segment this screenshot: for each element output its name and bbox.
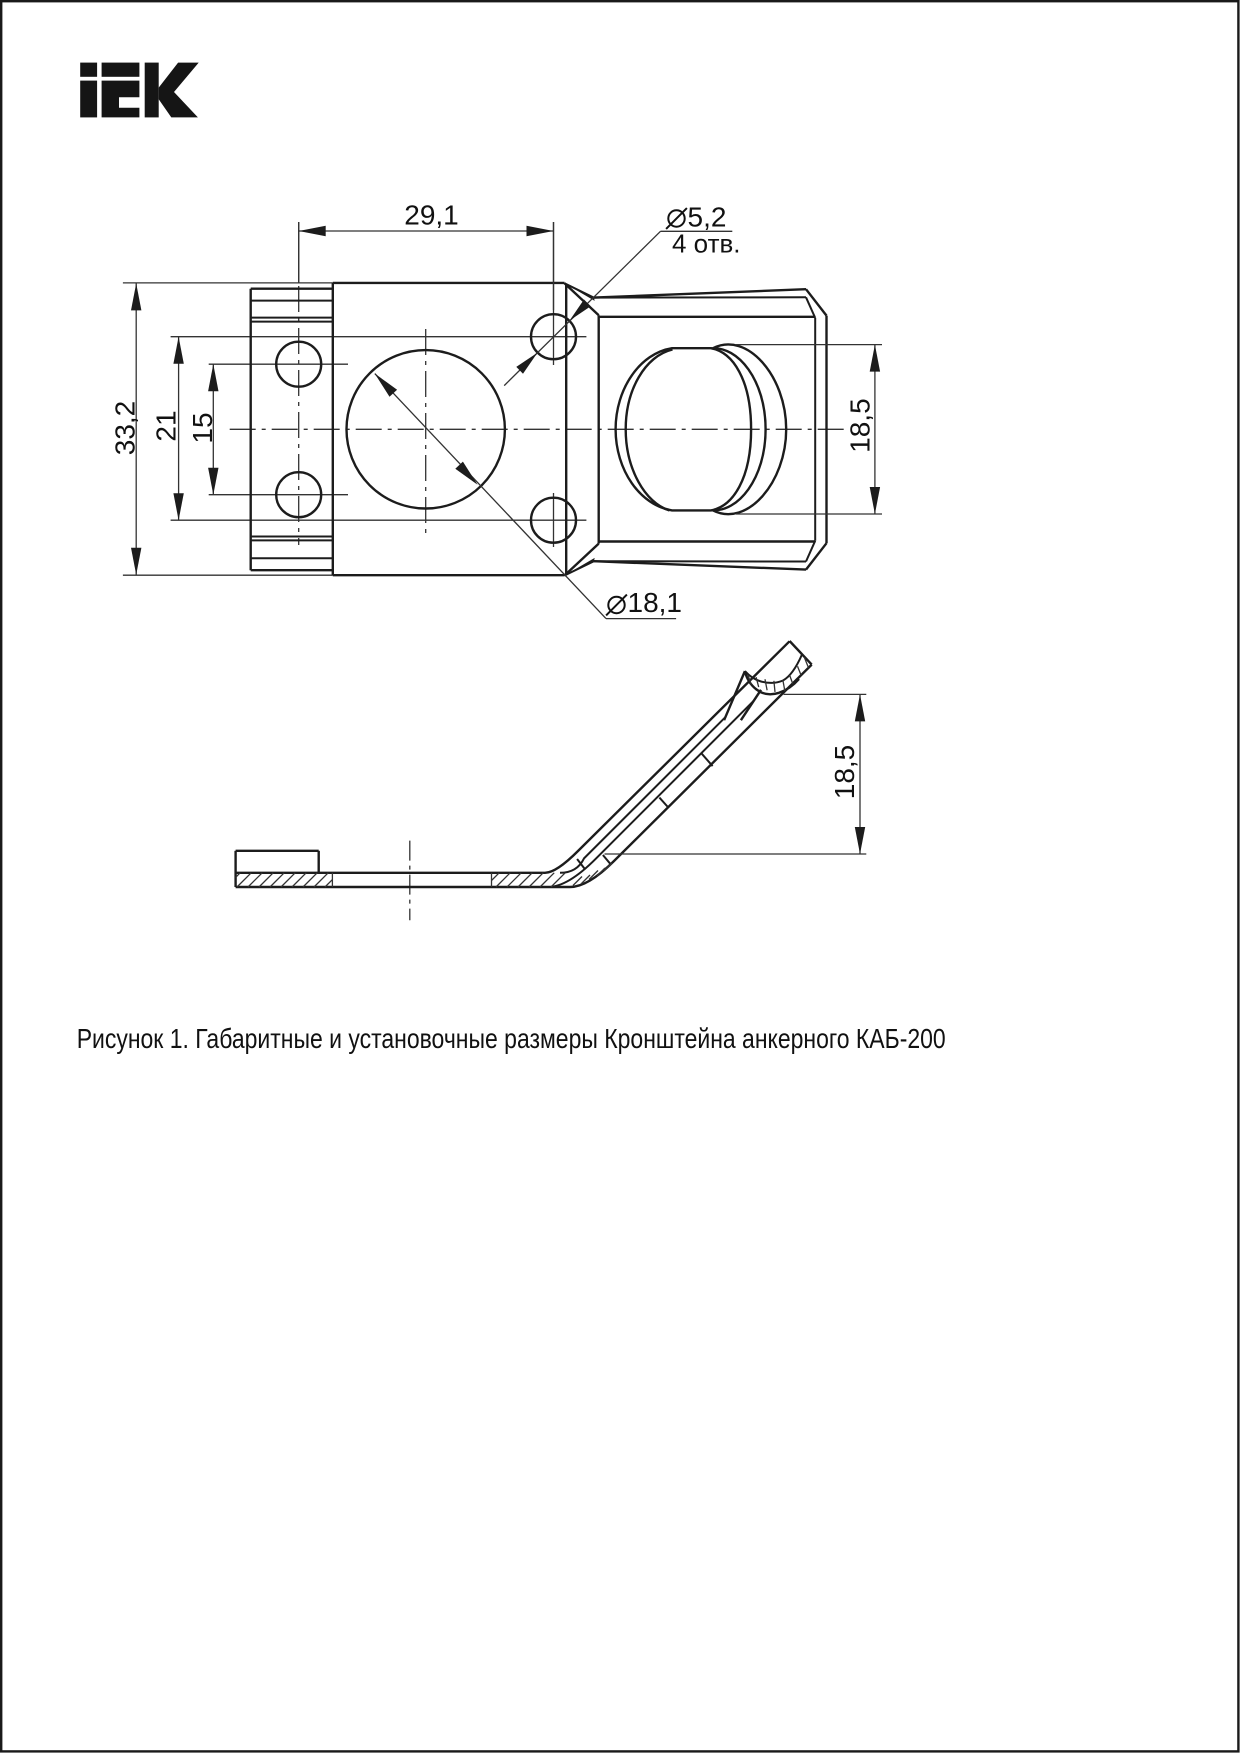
svg-text:15: 15 [187, 412, 218, 443]
svg-text:18,1: 18,1 [628, 587, 683, 618]
svg-text:18,5: 18,5 [845, 398, 876, 453]
svg-text:18,5: 18,5 [829, 745, 860, 800]
svg-text:29,1: 29,1 [404, 200, 459, 231]
svg-text:33,2: 33,2 [110, 401, 141, 456]
svg-text:Рисунок 1. Габаритные и устано: Рисунок 1. Габаритные и установочные раз… [77, 1023, 946, 1054]
svg-text:4 отв.: 4 отв. [672, 229, 741, 259]
svg-text:21: 21 [151, 410, 182, 441]
